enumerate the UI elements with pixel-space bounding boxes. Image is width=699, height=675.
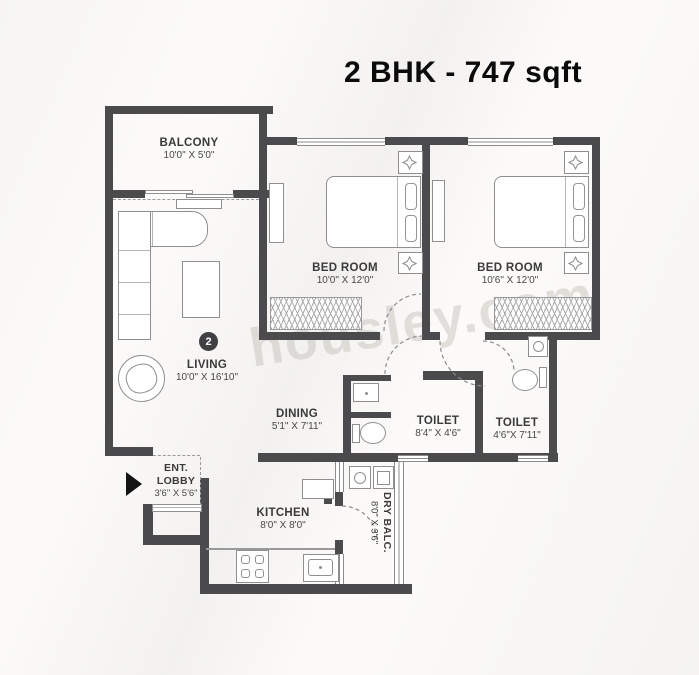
wall	[343, 375, 351, 462]
bedside-table	[564, 151, 589, 174]
sliding-door	[186, 194, 234, 198]
room-dims: 8'0" X 3'6"	[367, 464, 379, 582]
lobby-dashed-edge	[153, 455, 200, 456]
room-dims: 8'0" X 8'0"	[256, 520, 309, 533]
kitchen-platform	[302, 479, 334, 499]
kitchen-counter-line	[206, 548, 335, 550]
room-name: TOILET	[493, 416, 540, 430]
window	[518, 455, 548, 462]
bedside-table	[398, 252, 423, 274]
room-dims: 8'4" X 4'6"	[415, 428, 460, 441]
room-name: DINING	[272, 407, 322, 421]
unit-number-badge: 2	[199, 332, 218, 351]
wall	[343, 375, 391, 381]
wc-tank	[352, 424, 360, 443]
wall	[549, 332, 557, 462]
basin-bowl	[533, 341, 544, 352]
wall	[259, 332, 380, 340]
page-title: 2 BHK - 747 sqft	[344, 56, 582, 90]
room-label-bedroom-1: BED ROOM 10'0" X 12'0"	[312, 261, 378, 288]
wall	[143, 535, 205, 545]
wall	[105, 106, 273, 114]
room-label-ent-lobby: ENT. LOBBY 3'6" X 5'6"	[154, 462, 197, 500]
lobby-dashed-edge	[200, 457, 201, 505]
wall	[105, 190, 145, 198]
room-name: BED ROOM	[477, 261, 543, 275]
wall	[335, 540, 343, 554]
sink-drain	[319, 566, 322, 569]
sofa-seam	[152, 212, 153, 246]
dresser	[269, 183, 284, 243]
pillow	[573, 183, 585, 210]
room-label-toilet-1: TOILET 8'4" X 4'6"	[415, 414, 460, 441]
burner	[241, 555, 250, 564]
tv-console	[176, 199, 222, 209]
window	[468, 138, 553, 146]
room-dims: 10'0" X 5'0"	[160, 150, 219, 163]
wall	[267, 137, 297, 145]
coffee-table	[182, 261, 220, 318]
room-dims: 5'1" X 7'11"	[272, 421, 322, 434]
room-name: KITCHEN	[256, 506, 309, 520]
main-door-sill	[152, 504, 202, 512]
washbasin	[353, 383, 379, 402]
wall	[259, 114, 267, 340]
decor-icon	[568, 256, 583, 271]
room-label-toilet-2: TOILET 4'6"X 7'11"	[493, 416, 540, 443]
wall	[105, 447, 153, 456]
room-name: LIVING	[176, 358, 238, 372]
sill-line	[153, 507, 201, 508]
pillow	[405, 215, 417, 242]
room-label-living: LIVING 10'0" X 16'10"	[176, 358, 238, 385]
room-dims: 10'0" X 16'10"	[176, 372, 238, 385]
wall	[423, 371, 483, 380]
wall	[385, 137, 468, 145]
wall	[200, 584, 412, 594]
sofa	[118, 211, 151, 340]
room-label-dining: DINING 5'1" X 7'11"	[272, 407, 322, 434]
pillow	[405, 183, 417, 210]
room-label-dry-balcony: DRY BALC. 8'0" X 3'6"	[351, 464, 393, 582]
room-label-kitchen: KITCHEN 8'0" X 8'0"	[256, 506, 309, 533]
room-name: TOILET	[415, 414, 460, 428]
room-label-balcony: BALCONY 10'0" X 5'0"	[160, 136, 219, 163]
window	[335, 462, 344, 492]
wall	[430, 332, 440, 340]
blanket-line	[565, 177, 566, 247]
wall	[343, 412, 391, 418]
window	[297, 138, 385, 146]
room-name: LOBBY	[154, 475, 197, 488]
wall	[422, 145, 430, 340]
wardrobe	[270, 297, 362, 330]
room-name: DRY BALC.	[379, 464, 393, 582]
burner	[241, 569, 250, 578]
wc-bowl	[512, 369, 538, 391]
chair-cushion	[122, 360, 161, 398]
sofa-seam	[119, 314, 150, 315]
room-name: ENT.	[154, 462, 197, 475]
decor-icon	[402, 256, 417, 271]
wc-bowl	[360, 422, 386, 444]
burner	[255, 555, 264, 564]
wall	[200, 478, 209, 590]
wall	[335, 492, 343, 506]
room-dims: 4'6"X 7'11"	[493, 430, 540, 443]
wardrobe	[494, 297, 592, 330]
pillow	[573, 215, 585, 242]
washbasin	[528, 336, 548, 357]
wall	[105, 106, 113, 455]
basin-drain	[365, 392, 368, 395]
dresser	[432, 180, 445, 242]
wc-tank	[539, 367, 547, 388]
window	[394, 462, 404, 584]
room-dims: 3'6" X 5'6"	[154, 488, 197, 500]
room-dims: 10'0" X 12'0"	[312, 275, 378, 288]
burner	[255, 569, 264, 578]
lounge-chair	[118, 355, 165, 402]
stove	[236, 550, 269, 583]
blanket-line	[397, 177, 398, 247]
wall	[233, 190, 273, 198]
room-dims: 10'6" X 12'0"	[477, 275, 543, 288]
kitchen-sink	[303, 554, 339, 582]
wall	[592, 137, 600, 340]
sofa-seam	[119, 282, 150, 283]
window	[398, 455, 428, 462]
decor-icon	[402, 155, 417, 170]
bedside-table	[398, 151, 423, 174]
room-name: BED ROOM	[312, 261, 378, 275]
room-name: BALCONY	[160, 136, 219, 150]
decor-icon	[568, 155, 583, 170]
bedside-table	[564, 252, 589, 274]
entry-arrow-icon	[126, 472, 142, 496]
floor-plan: housley.com 2 BHK - 747 sqft	[0, 0, 699, 675]
room-label-bedroom-2: BED ROOM 10'6" X 12'0"	[477, 261, 543, 288]
sofa-seam	[119, 250, 150, 251]
wall	[475, 373, 483, 462]
